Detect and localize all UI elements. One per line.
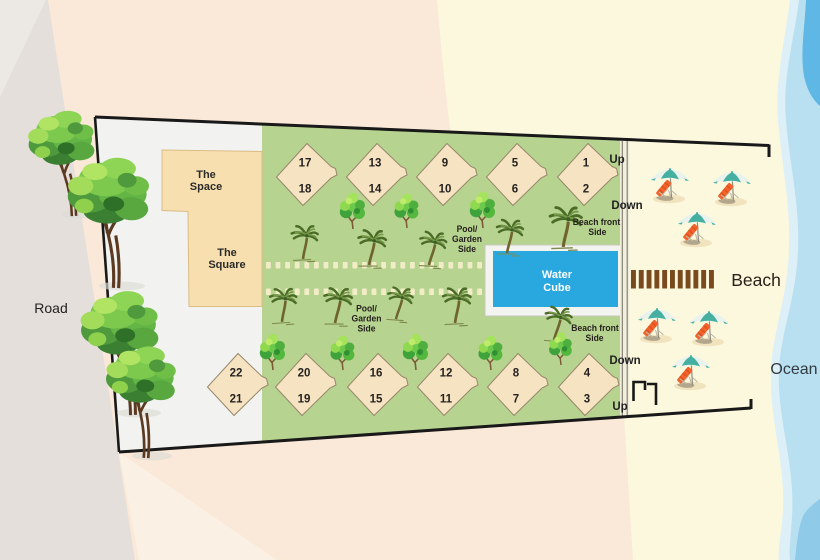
svg-text:Side: Side [586, 333, 604, 344]
svg-text:The: The [196, 169, 216, 181]
svg-text:Down: Down [611, 200, 642, 212]
svg-text:1: 1 [583, 157, 590, 169]
svg-text:Side: Side [357, 323, 375, 334]
svg-text:10: 10 [439, 184, 452, 196]
svg-text:Up: Up [609, 154, 624, 166]
svg-text:Garden: Garden [352, 313, 382, 324]
svg-text:Garden: Garden [452, 234, 482, 245]
svg-text:Cube: Cube [543, 282, 571, 294]
svg-text:9: 9 [442, 157, 448, 169]
svg-text:Space: Space [190, 181, 222, 193]
svg-text:4: 4 [584, 367, 591, 379]
svg-text:18: 18 [299, 184, 312, 196]
svg-text:Side: Side [588, 227, 606, 238]
svg-text:13: 13 [369, 157, 382, 169]
svg-text:Pool/: Pool/ [457, 224, 478, 235]
svg-text:17: 17 [299, 157, 312, 169]
svg-text:The: The [217, 247, 237, 259]
svg-text:Water: Water [542, 269, 573, 281]
svg-text:Beach: Beach [731, 270, 781, 290]
svg-text:16: 16 [370, 367, 383, 379]
svg-text:11: 11 [440, 394, 453, 406]
svg-text:Beach front: Beach front [573, 217, 620, 228]
svg-text:Road: Road [34, 300, 67, 316]
svg-text:Ocean: Ocean [770, 361, 817, 378]
svg-text:2: 2 [583, 184, 589, 196]
svg-text:5: 5 [512, 157, 519, 169]
svg-text:Up: Up [612, 401, 627, 413]
svg-text:Side: Side [458, 244, 476, 255]
svg-text:Square: Square [208, 259, 245, 271]
svg-text:Down: Down [609, 355, 640, 367]
svg-text:20: 20 [298, 367, 311, 379]
svg-text:14: 14 [369, 184, 382, 196]
svg-text:6: 6 [512, 184, 518, 196]
svg-text:22: 22 [230, 367, 243, 379]
svg-text:8: 8 [513, 367, 520, 379]
svg-text:21: 21 [230, 394, 243, 406]
svg-text:12: 12 [440, 367, 453, 379]
svg-text:7: 7 [513, 394, 519, 406]
svg-text:3: 3 [584, 394, 590, 406]
svg-text:15: 15 [370, 394, 383, 406]
svg-text:19: 19 [298, 394, 311, 406]
svg-text:Beach front: Beach front [571, 323, 618, 334]
svg-text:Pool/: Pool/ [356, 303, 377, 314]
